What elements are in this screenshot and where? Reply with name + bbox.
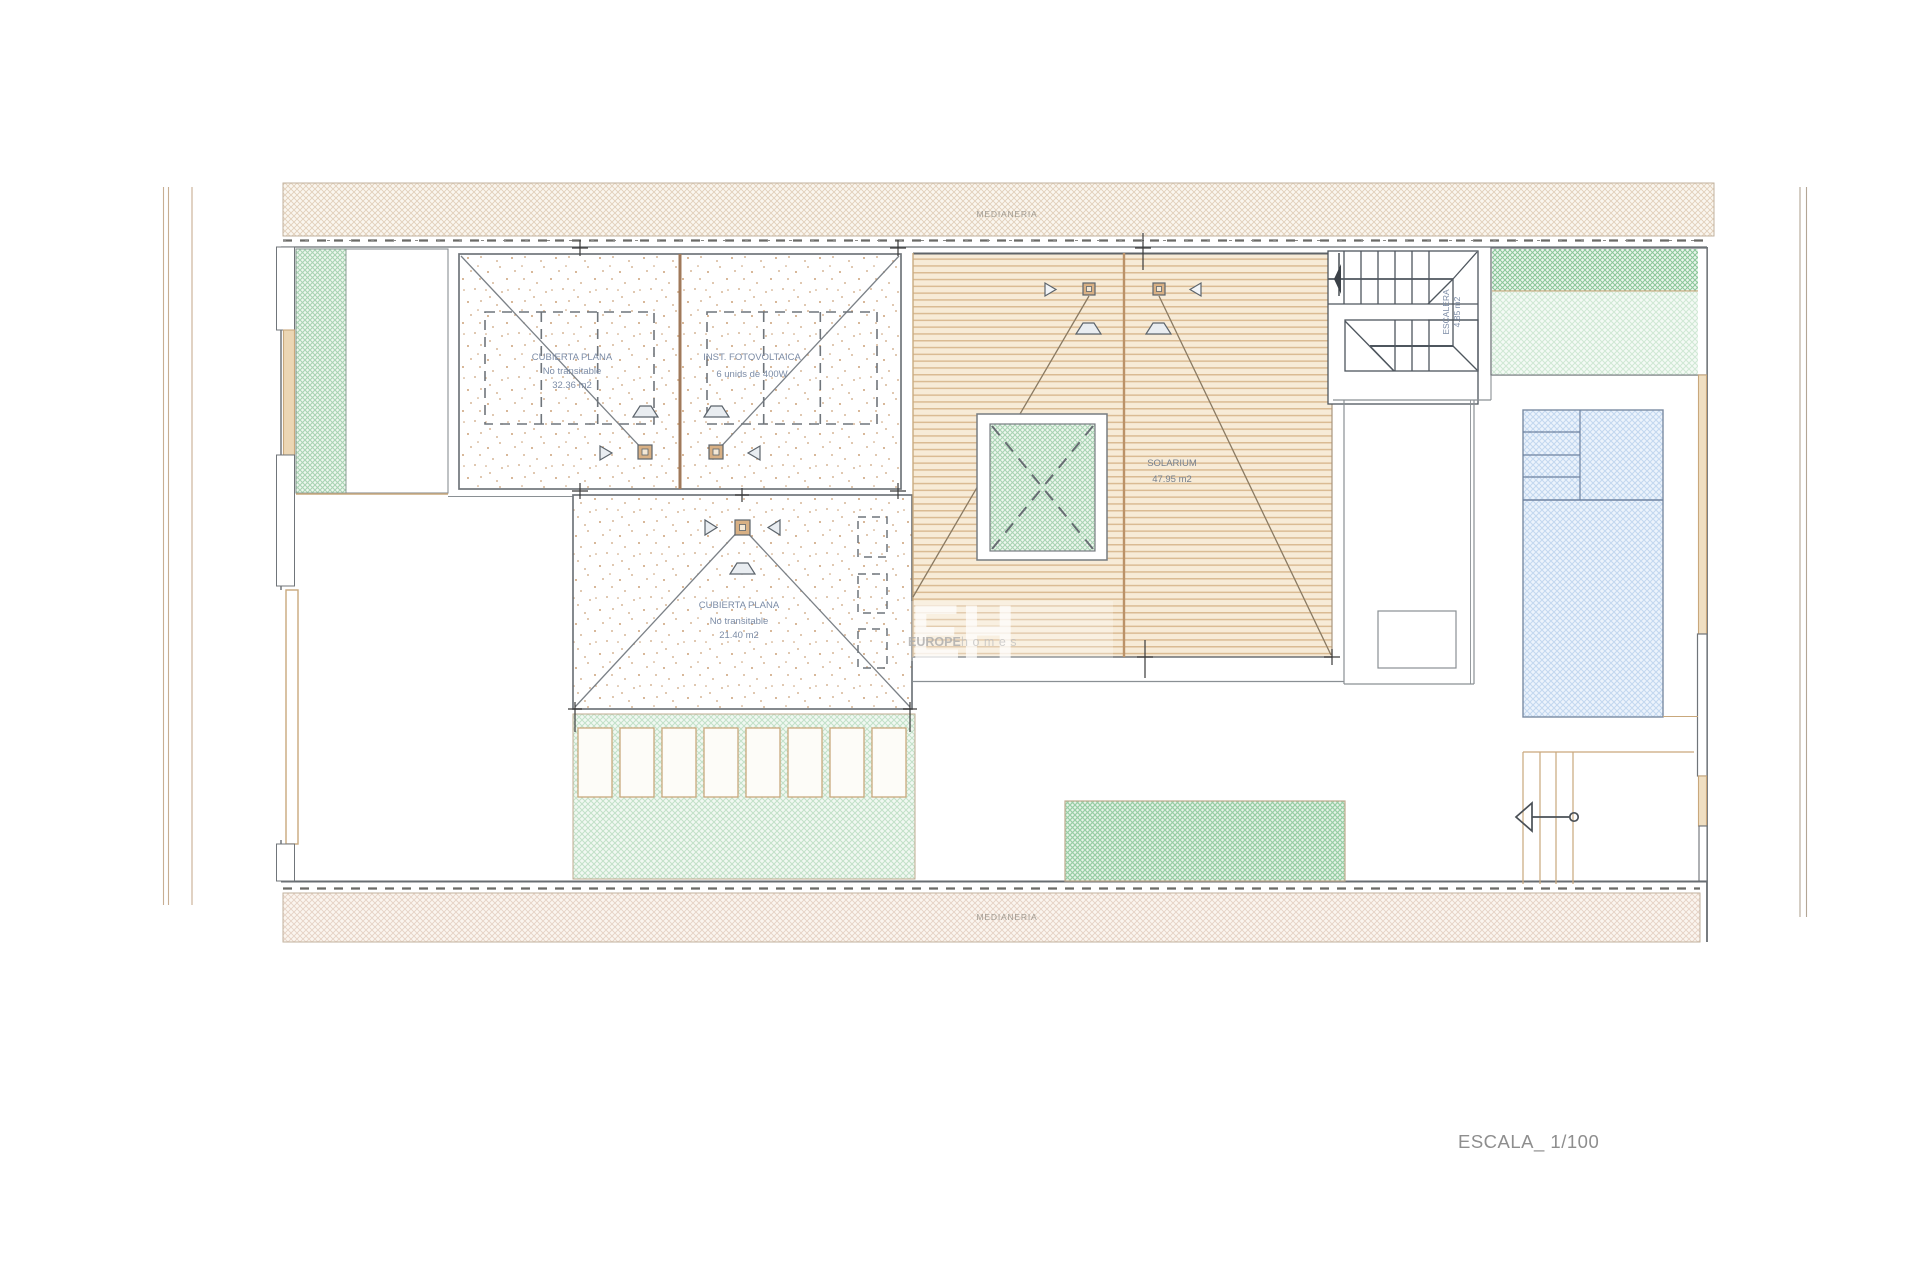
svg-text:No transitable: No transitable (710, 616, 769, 627)
svg-text:SOLARIUM: SOLARIUM (1147, 458, 1197, 469)
svg-text:homes: homes (961, 635, 1021, 649)
svg-text:MEDIANERIA: MEDIANERIA (977, 912, 1038, 922)
svg-text:INST. FOTOVOLTAICA: INST. FOTOVOLTAICA (703, 352, 801, 363)
svg-text:4.85 m2: 4.85 m2 (1452, 296, 1462, 327)
svg-text:21.40 m2: 21.40 m2 (719, 630, 759, 641)
svg-text:32.36 m2: 32.36 m2 (552, 380, 592, 391)
svg-text:MEDIANERIA: MEDIANERIA (977, 209, 1038, 219)
svg-text:47.95 m2: 47.95 m2 (1152, 474, 1192, 485)
svg-text:ESCALA_ 1/100: ESCALA_ 1/100 (1458, 1131, 1599, 1153)
svg-text:No transitable: No transitable (543, 366, 602, 377)
svg-text:ESCALERA: ESCALERA (1441, 289, 1451, 335)
svg-text:6 unids de 400W: 6 unids de 400W (716, 369, 787, 380)
svg-text:CUBIERTA PLANA: CUBIERTA PLANA (699, 600, 780, 611)
svg-text:EH: EH (910, 590, 1016, 675)
svg-text:EUROPE: EUROPE (908, 635, 961, 649)
svg-text:CUBIERTA PLANA: CUBIERTA PLANA (532, 352, 613, 363)
